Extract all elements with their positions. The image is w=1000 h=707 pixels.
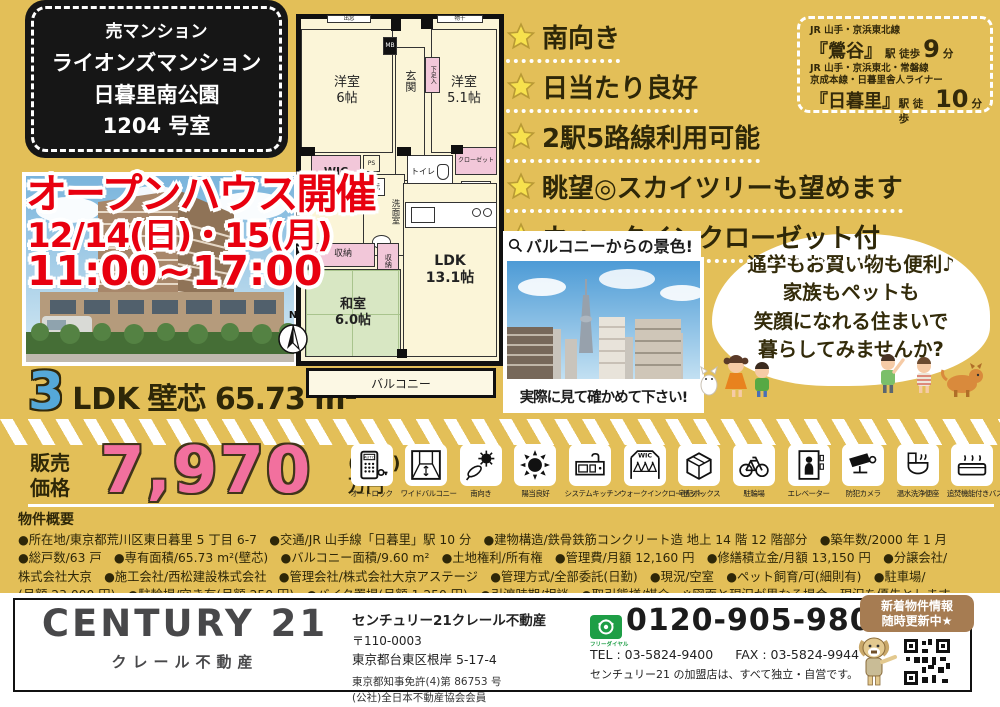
amenity-auto-lock: AUTOオートロック [346,444,397,499]
access-station1: 『鶯谷』 駅 徒歩 9 分 [810,37,982,63]
girl-illustration [724,355,749,397]
amenity-reheat-bath: 追焚機能付きバス [947,444,998,499]
floorplan-ldk: LDK 13.1帖 [403,183,497,357]
company-postal: 〒110-0003 [352,632,546,649]
station2-unit: 分 [972,96,983,111]
view-caption: バルコニーからの景色! [503,231,701,259]
svg-text:WIC: WIC [638,452,652,460]
balcony-view-photo: 実際に見て確かめて下さい! [503,257,704,413]
dog-mascot [856,635,898,691]
freedial-icon [590,615,622,639]
system-kitchen-icon [569,444,611,486]
amenity-wide-balcony: ワイドバルコニー [401,444,452,499]
family-illustration-left [698,352,780,402]
footer: CENTURY 21 クレール不動産 センチュリー21クレール不動産 〒110-… [0,593,1000,707]
amenity-walk-in-closet: WICウォークインクローゼット [619,444,670,499]
dog-illustration [943,363,984,397]
toilet-icon [437,164,449,180]
station2-name: 『日暮里』 [810,87,896,113]
divider-line [28,504,994,507]
century21-logo-sub: クレール不動産 [30,651,340,672]
layout-type: LDK [72,382,139,417]
amenity-icons-row: AUTOオートロックワイドバルコニー南向き陽当良好システムキッチンWICウォーク… [346,444,998,499]
floorplan-kitchen-counter [405,202,497,228]
boy-illustration [755,362,769,397]
amenity-label: 南向き [455,488,506,499]
bubble-line: 笑顔になれる住まいで [712,308,990,336]
freedial-mark: フリーダイヤル [590,615,624,648]
star-icon [506,22,536,52]
south-facing-icon [460,444,502,486]
amenity-label: 陽当良好 [510,488,561,499]
station1-unit: 分 [943,46,954,61]
overview-line: ●総戸数/63 戸 ●専有面積/65.73 m²(壁芯) ●バルコニー面積/9.… [18,549,996,567]
property-name-box: 売マンション ライオンズマンション 日暮里南公園 1204 号室 [25,0,288,158]
amenity-label: エレベーター [783,488,834,499]
badge-line1: 新着物件情報 [881,599,953,614]
feature-text: 眺望◎スカイツリーも望めます [542,168,903,205]
dashed-border [31,6,282,152]
property-overview: 物件概要 ●所在地/東京都荒川区東日暮里 5 丁目 6-7 ●交通/JR 山手線… [18,509,996,605]
tel-fax-line: TEL : 03-5824-9400 FAX : 03-5824-9944 [590,647,859,662]
amenity-washlet: 温水洗浄便座 [892,444,943,499]
station2-minutes: 10 [935,87,968,111]
bubble-line: 家族もペットも [712,279,990,307]
overview-line: 株式会社大京 ●施工会社/西松建設株式会社 ●管理会社/株式会社大京アステージ … [18,568,996,586]
company-name: センチュリー21クレール不動産 [352,609,546,629]
floorplan-balcony: バルコニー [306,368,496,398]
new-listings-badge: 新着物件情報 随時更新中★ [860,595,974,632]
amenity-label: ウォークインクローゼット [619,488,670,499]
company-address: 東京都台東区根岸 5-17-4 [352,649,546,668]
amenity-sunny: 陽当良好 [510,444,561,499]
feature-item: 南向き [506,18,620,63]
franchise-disclaimer: センチュリー21 の加盟店は、すべて独立・自営です。 [590,666,858,682]
price-amount: 7,970 [100,434,312,508]
floorplan-western-room2: 洋室 5.1帖 [431,29,497,153]
amenity-label: オートロック [346,488,397,499]
balcony-view-art [507,261,700,379]
century21-logo: CENTURY 21 クレール不動産 [30,605,340,672]
star-icon [506,72,536,102]
flyer: 売マンション ライオンズマンション 日暮里南公園 1204 号室 [0,0,1000,707]
star-icon [506,122,536,152]
room-count: 3 [28,366,64,418]
view-note: 実際に見て確かめて下さい! [507,386,700,407]
access-station2: 『日暮里』 駅 徒歩 10 分 [810,87,982,126]
star-icon [506,172,536,202]
station1-walk: 駅 徒歩 [885,46,920,61]
century21-logo-text: CENTURY 21 [30,605,340,642]
feature-item: 2駅5路線利用可能 [506,118,760,163]
feature-item: 眺望◎スカイツリーも望めます [506,168,903,213]
amenity-label: ワイドバルコニー [401,488,452,499]
floorplan-western-room1: 洋室 6帖 [301,29,393,153]
feature-item: 日当たり良好 [506,68,698,113]
amenity-security-camera: 防犯カメラ [838,444,889,499]
reheat-bath-icon [951,444,993,486]
feature-text: 南向き [542,18,620,55]
amenity-bicycle-parking: 駐輪場 [728,444,779,499]
amenity-label: 駐輪場 [728,488,779,499]
station1-name: 『鶯谷』 [810,37,882,63]
amenity-south-facing: 南向き [455,444,506,499]
magnifier-icon [508,238,523,253]
company-info: センチュリー21クレール不動産 〒110-0003 東京都台東区根岸 5-17-… [352,609,546,705]
overview-title: 物件概要 [18,509,996,529]
fax-number: FAX : 03-5824-9944 [735,647,859,662]
amenity-label: 防犯カメラ [838,488,889,499]
auto-lock-icon: AUTO [351,444,393,486]
overview-line: ●所在地/東京都荒川区東日暮里 5 丁目 6-7 ●交通/JR 山手線「日暮里」… [18,531,996,549]
amenity-label: システムキッチン [565,488,616,499]
father-illustration [881,354,903,393]
cat-illustration [701,367,717,395]
company-license: 東京都知事免許(4)第 86753 号 [352,674,546,689]
elevator-icon [788,444,830,486]
floorplan-bay-window: 出窓 [327,15,371,23]
svg-text:N: N [289,310,297,321]
station1-minutes: 9 [923,37,940,61]
svg-text:AUTO: AUTO [363,455,374,460]
amenity-system-kitchen: システムキッチン [565,444,616,499]
delivery-box-icon [678,444,720,486]
wide-balcony-icon [405,444,447,486]
amenity-delivery-box: 宅配ボックス [674,444,725,499]
amenity-label: 温水洗浄便座 [892,488,943,499]
tel-number: TEL : 03-5824-9400 [590,647,713,662]
sunny-icon [514,444,556,486]
amenity-elevator: エレベーター [783,444,834,499]
company-membership: (公社)全日本不動産協会会員 [352,690,546,705]
feature-text: 日当たり良好 [542,68,698,105]
amenity-label: 宅配ボックス [674,488,725,499]
station-access-box: JR 山手・京浜東北線 『鶯谷』 駅 徒歩 9 分 JR 山手・京浜東北・常磐線… [797,16,993,113]
child-illustration [917,357,931,393]
phone-number: 0120-905-980 [626,603,872,638]
open-house-time: 11:00~17:00 [27,247,322,295]
feature-text: 2駅5路線利用可能 [542,118,760,155]
floorplan-shoe-box: 下足入 [425,57,440,93]
family-illustration-right [872,348,988,402]
badge-line2: 随時更新中★ [882,614,953,629]
walk-in-closet-icon: WIC [624,444,666,486]
station2-walk: 駅 徒歩 [899,96,932,126]
compass-north-icon: N [278,308,308,364]
access-line2a: JR 山手・京浜東北・常磐線 [810,63,982,75]
price-label: 販売 価格 [30,451,70,501]
floorplan-laundry-window: 物干 [437,15,483,23]
amenity-label: 追焚機能付きバス [947,488,998,499]
floorplan-meter-box: MB [383,37,397,55]
bicycle-parking-icon [733,444,775,486]
security-camera-icon [842,444,884,486]
washlet-icon [897,444,939,486]
qr-code [902,637,952,691]
access-line1: JR 山手・京浜東北線 [810,25,982,37]
